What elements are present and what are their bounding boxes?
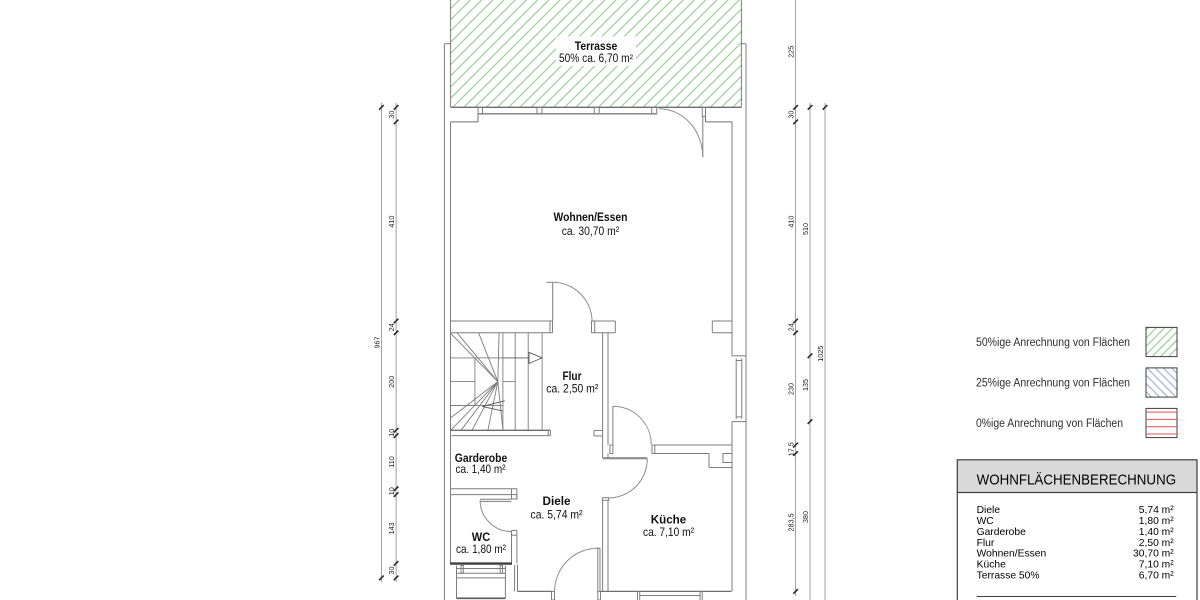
svg-text:ca. 2,50 m²: ca. 2,50 m² [546,382,598,396]
svg-text:380: 380 [801,511,810,523]
svg-text:410: 410 [387,216,396,228]
svg-text:50%ige Anrechnung von Flächen: 50%ige Anrechnung von Flächen [976,337,1130,349]
svg-text:1,80 m²: 1,80 m² [1139,516,1174,527]
svg-text:ca. 1,80 m²: ca. 1,80 m² [456,542,506,556]
svg-text:30,70 m²: 30,70 m² [1133,549,1174,560]
svg-text:ca. 5,74 m²: ca. 5,74 m² [531,508,583,522]
svg-text:Diele: Diele [543,494,571,508]
svg-text:30: 30 [787,111,796,119]
svg-text:Küche: Küche [977,560,1006,571]
svg-text:Diele: Diele [977,505,1001,516]
svg-text:230: 230 [787,383,796,395]
svg-text:30: 30 [387,567,396,575]
svg-text:135: 135 [801,379,810,391]
svg-text:225: 225 [787,46,796,58]
svg-text:30: 30 [387,111,396,119]
svg-text:1,40 m²: 1,40 m² [1139,527,1174,538]
svg-text:WC: WC [977,516,995,527]
svg-text:ca. 30,70 m²: ca. 30,70 m² [562,224,620,238]
svg-text:200: 200 [387,376,396,388]
svg-text:25%ige Anrechnung von Flächen: 25%ige Anrechnung von Flächen [976,378,1130,390]
svg-text:10: 10 [387,429,396,437]
svg-text:50% ca. 6,70 m²: 50% ca. 6,70 m² [559,53,633,65]
svg-text:ca. 7,10 m²: ca. 7,10 m² [643,525,694,539]
svg-text:5,74 m²: 5,74 m² [1139,505,1174,516]
svg-text:Terrasse 50%: Terrasse 50% [977,570,1040,581]
svg-text:967: 967 [372,337,381,349]
svg-text:410: 410 [787,216,796,228]
svg-text:Wohnen/Essen: Wohnen/Essen [977,549,1047,560]
svg-text:2,50 m²: 2,50 m² [1139,538,1174,549]
svg-text:Terrasse: Terrasse [575,41,618,53]
svg-text:7,10 m²: 7,10 m² [1139,560,1174,571]
svg-text:Garderobe: Garderobe [977,527,1027,538]
svg-text:0%ige Anrechnung von Flächen: 0%ige Anrechnung von Flächen [976,418,1123,430]
svg-text:6,70 m²: 6,70 m² [1139,570,1174,581]
svg-text:24: 24 [387,323,396,331]
svg-text:WOHNFLÄCHENBERECHNUNG: WOHNFLÄCHENBERECHNUNG [977,471,1177,488]
svg-text:24: 24 [787,323,796,331]
svg-text:ca. 1,40 m²: ca. 1,40 m² [456,462,506,476]
svg-text:110: 110 [387,456,396,467]
svg-text:1025: 1025 [816,346,825,362]
svg-text:Flur: Flur [977,538,995,549]
svg-text:10: 10 [387,487,396,495]
svg-text:143: 143 [387,522,396,534]
svg-text:Wohnen/Essen: Wohnen/Essen [554,210,628,224]
svg-text:17,5: 17,5 [787,442,796,456]
svg-text:510: 510 [801,223,810,235]
svg-text:283,5: 283,5 [787,513,796,531]
